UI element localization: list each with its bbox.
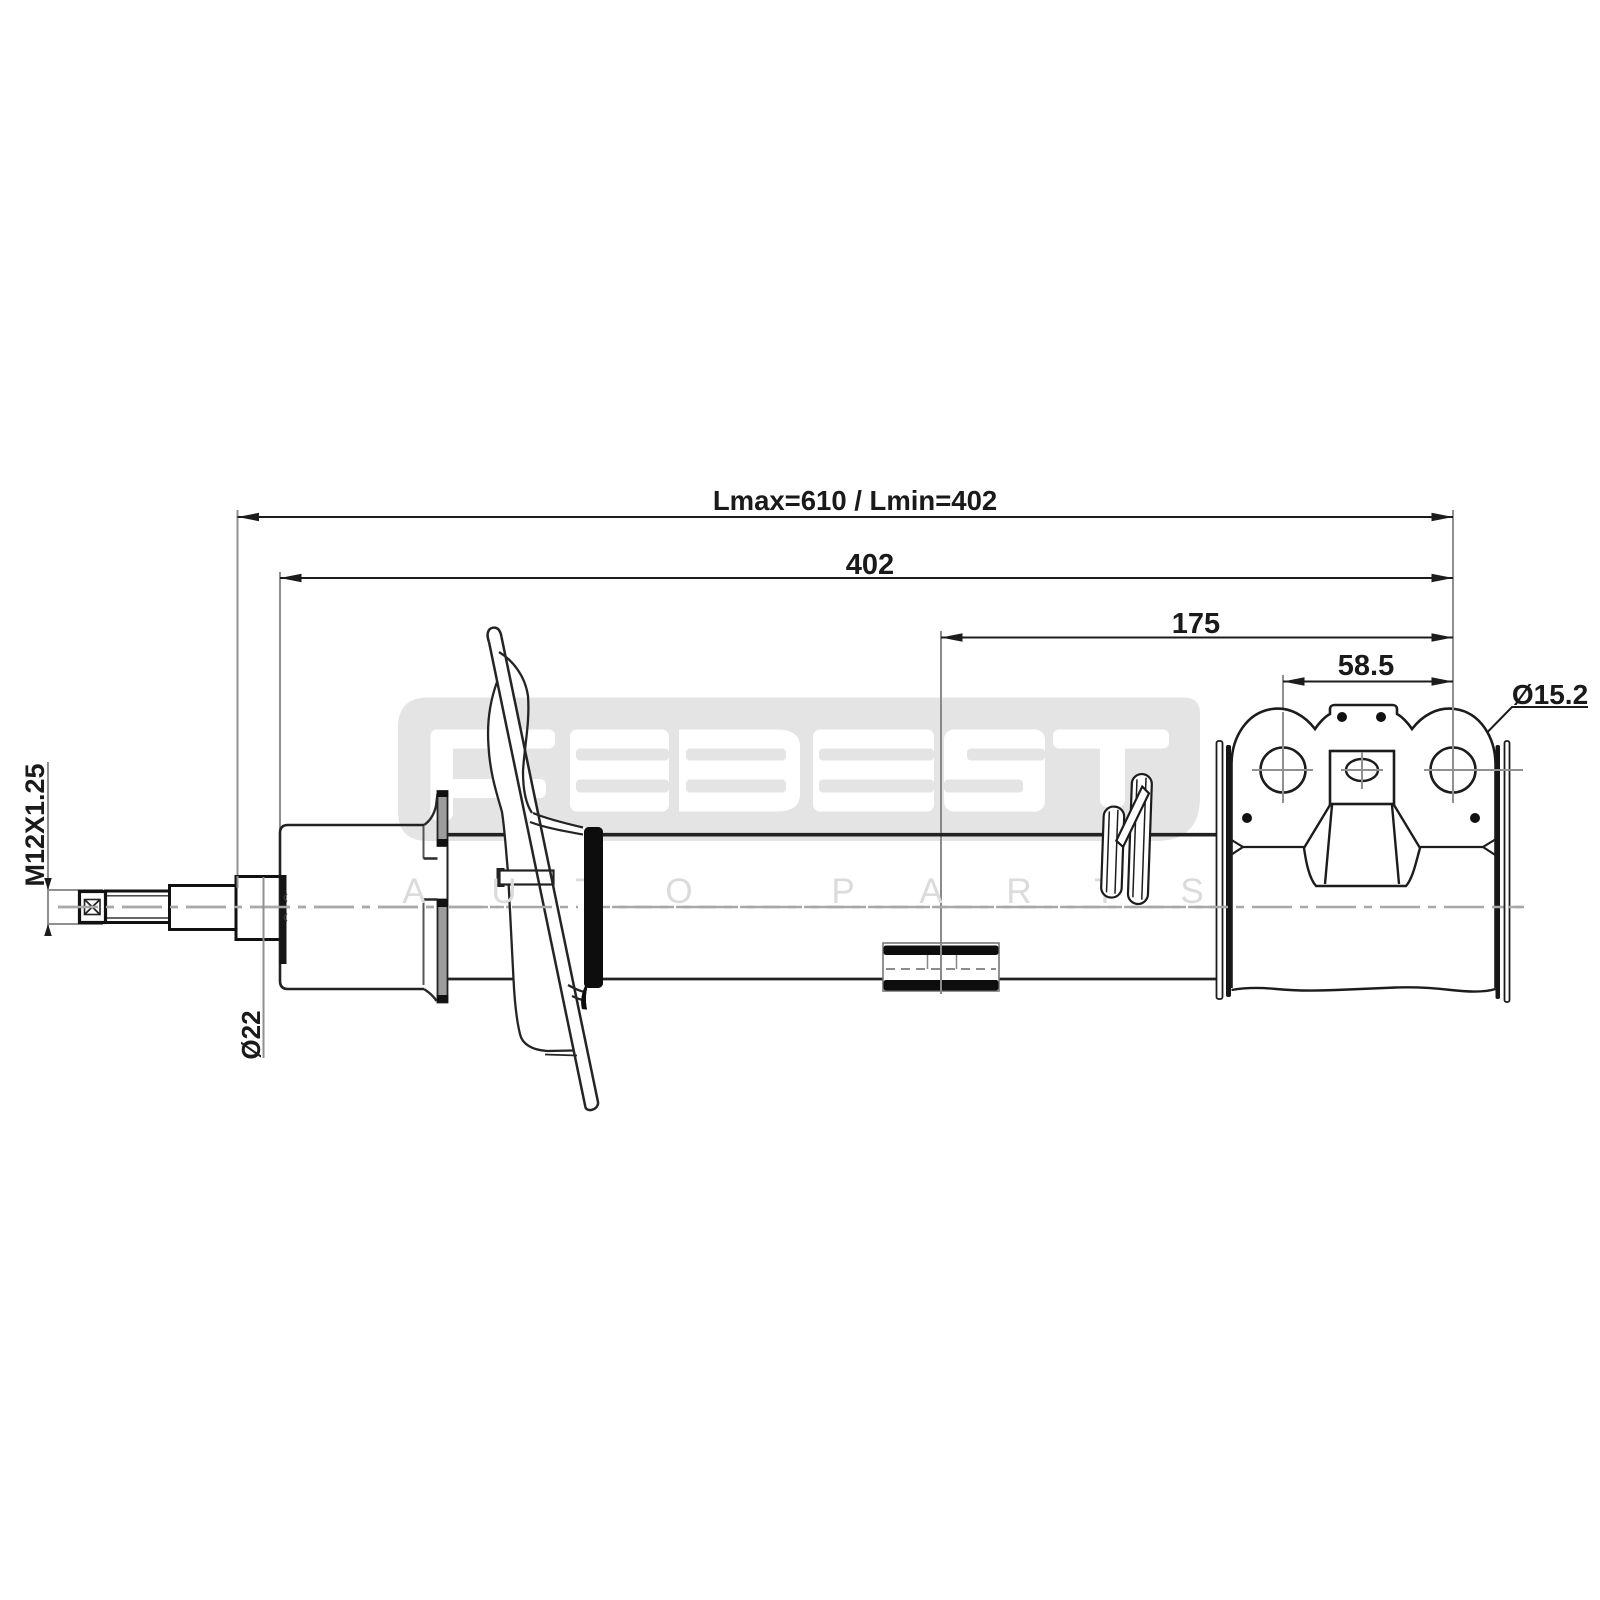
svg-text:M12X1.25: M12X1.25 <box>20 763 50 886</box>
svg-text:Ø15.2: Ø15.2 <box>1512 679 1588 710</box>
svg-text:O: O <box>665 872 692 911</box>
svg-text:R: R <box>1006 872 1031 911</box>
svg-text:Ø22: Ø22 <box>236 1010 266 1059</box>
svg-text:P: P <box>831 872 854 911</box>
svg-text:175: 175 <box>1172 608 1220 640</box>
svg-text:S: S <box>1180 872 1203 911</box>
svg-text:Lmax=610 / Lmin=402: Lmax=610 / Lmin=402 <box>713 485 997 516</box>
svg-text:58.5: 58.5 <box>1338 650 1394 682</box>
svg-text:402: 402 <box>846 549 894 581</box>
svg-text:U: U <box>491 872 516 911</box>
svg-text:A: A <box>402 872 426 911</box>
svg-text:A: A <box>919 872 943 911</box>
